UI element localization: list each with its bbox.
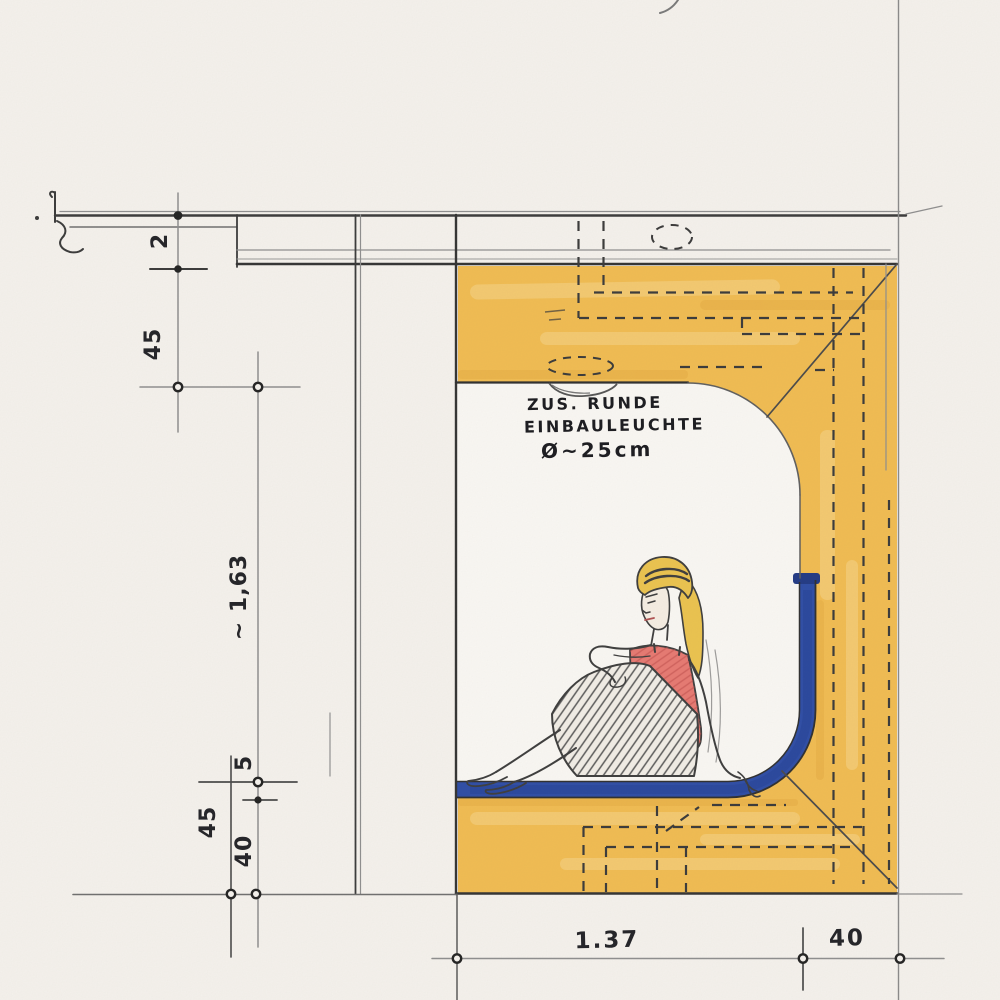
dim-label-ceiling-offset: 2: [150, 233, 172, 249]
dim-label-seat-height: 45: [198, 806, 220, 839]
annotation-line3: Ø~25cm: [541, 439, 654, 461]
dim-label-niche-width: 1.37: [574, 929, 639, 954]
paper-grain-overlay: [0, 0, 1000, 1000]
section-drawing: [0, 0, 1000, 1000]
dim-label-opening-height: ~ 1,63: [229, 554, 251, 640]
dim-label-soffit-height: 45: [143, 328, 165, 361]
dim-label-under-seat: 40: [234, 835, 256, 868]
sketch-page: 2 45 ~ 1,63 5 45 40 1.37 40 ZUS. RUNDE E…: [0, 0, 1000, 1000]
annotation-line1: ZUS. RUNDE: [527, 395, 663, 413]
annotation-line2: EINBAULEUCHTE: [524, 416, 705, 435]
dim-label-bench-depth: 40: [829, 927, 866, 951]
dim-label-seat-thickness: 5: [234, 755, 256, 771]
